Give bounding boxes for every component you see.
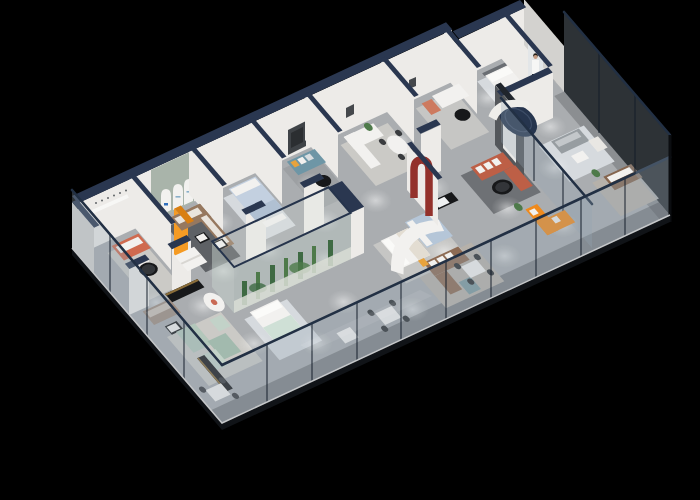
showroom-render-canvas: 3D isometric cutaway rendering of a long… xyxy=(0,0,700,500)
arch-text-mark xyxy=(176,196,181,198)
isometric-floorplan xyxy=(0,0,700,500)
arch-logo-mark xyxy=(164,203,168,206)
poster-figure-head xyxy=(534,55,538,59)
poster-figure-shirt xyxy=(532,60,539,74)
terrarium-end-column xyxy=(351,207,364,259)
